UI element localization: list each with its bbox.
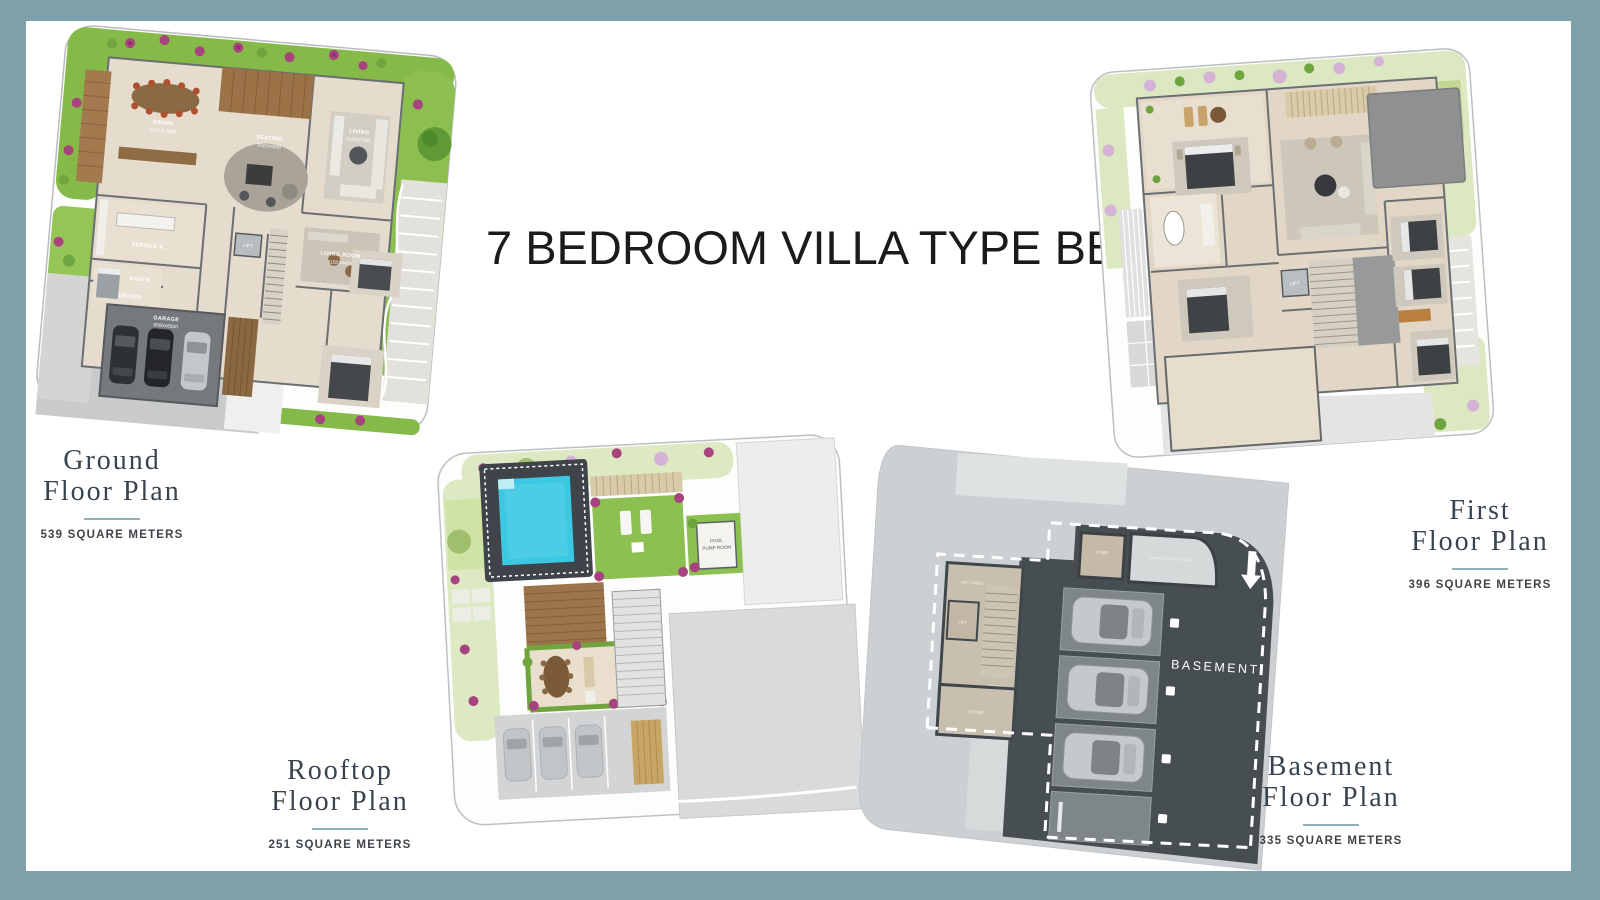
lift: LIFT — [1281, 269, 1309, 297]
first-floor-plan: LIFT — [1078, 35, 1506, 472]
roof-lawn — [590, 493, 688, 582]
room-label-lift: LIFT — [958, 619, 967, 625]
family-living — [1280, 133, 1379, 240]
entry-deck — [219, 67, 314, 119]
pump-room: PUMP — [1079, 533, 1126, 580]
timber-gate — [631, 719, 664, 784]
car-silver — [180, 331, 211, 391]
staff-rooms — [92, 263, 163, 307]
page-title: 7 BEDROOM VILLA TYPE BB — [486, 220, 1117, 275]
room-label-pool: POOL — [710, 538, 723, 544]
first-floor-area: 396 SQUARE METERS — [1380, 579, 1580, 591]
master-bedroom — [1172, 137, 1252, 198]
car-dark-1 — [108, 325, 139, 385]
parked-car — [575, 724, 604, 777]
pool-pump-room: POOL PUMP ROOM — [686, 513, 743, 576]
rooftop-floor-label-title: Rooftop Floor Plan — [240, 756, 440, 818]
rooftop-floor-label-line1: Rooftop — [240, 756, 440, 787]
basement-floor-label-line2: Floor Plan — [1226, 783, 1436, 814]
bathroom — [1150, 193, 1221, 267]
ground-floor-plan-graphic: DINING 4310 X 7800 SEATING 7610X4500 LIV… — [19, 8, 474, 458]
swimming-pool — [479, 459, 593, 582]
lower-roof-terrace — [1165, 347, 1321, 451]
parked-car — [1062, 732, 1145, 783]
parked-car — [503, 728, 532, 781]
first-floor-plan-graphic: LIFT — [1078, 35, 1506, 472]
brochure-canvas: 7 BEDROOM VILLA TYPE BB — [0, 0, 1600, 900]
room-label-pump: PUMP — [1096, 550, 1109, 556]
living-room — [323, 111, 390, 204]
first-floor-label: First Floor Plan 396 SQUARE METERS — [1380, 496, 1580, 591]
label-divider — [312, 828, 368, 830]
ground-floor-label: Ground Floor Plan 539 SQUARE METERS — [12, 446, 212, 541]
car-dark-2 — [143, 328, 174, 388]
first-floor-label-title: First Floor Plan — [1380, 496, 1580, 558]
rooftop-floor-area: 251 SQUARE METERS — [240, 839, 440, 851]
rooftop-floor-plan-graphic: POOL PUMP ROOM — [420, 419, 870, 841]
label-divider — [1452, 568, 1508, 570]
bedroom-2 — [1178, 275, 1254, 342]
pool-deck — [524, 582, 607, 648]
label-divider — [1303, 824, 1359, 826]
parked-car — [539, 726, 568, 779]
room-label-lift: LIFT — [243, 243, 253, 250]
water-tank-room: DOMESTIC WATER TANK — [1128, 534, 1219, 587]
staircase — [1309, 255, 1401, 349]
room-label-store: STORE — [969, 709, 984, 715]
kitchen — [95, 199, 204, 266]
parked-car — [1066, 664, 1149, 715]
parked-car — [1071, 596, 1154, 647]
ground-floor-label-line1: Ground — [12, 446, 212, 477]
label-divider — [84, 518, 140, 520]
staircase — [612, 589, 666, 707]
ground-floor-plan: DINING 4310 X 7800 SEATING 7610X4500 LIV… — [19, 8, 474, 458]
core-rooms: LIFT LOBBY LIFT STAIRS STORE — [937, 563, 1023, 739]
rooftop-floor-plan: POOL PUMP ROOM — [420, 419, 870, 841]
basement-floor-label: Basement Floor Plan 335 SQUARE METERS — [1226, 752, 1436, 847]
room-label-lift: LIFT — [1290, 281, 1300, 288]
basement-floor-label-line1: Basement — [1226, 752, 1436, 783]
rooftop-floor-label-line2: Floor Plan — [240, 787, 440, 818]
ground-floor-label-line2: Floor Plan — [12, 477, 212, 508]
first-floor-label-line2: Floor Plan — [1380, 527, 1580, 558]
basement-floor-area: 335 SQUARE METERS — [1226, 835, 1436, 847]
ground-floor-area: 539 SQUARE METERS — [12, 529, 212, 541]
staircase: STAIRS — [980, 585, 1018, 690]
roof-terrace-void — [1367, 88, 1465, 188]
ground-floor-label-title: Ground Floor Plan — [12, 446, 212, 508]
first-floor-label-line1: First — [1380, 496, 1580, 527]
rooftop-floor-label: Rooftop Floor Plan 251 SQUARE METERS — [240, 756, 440, 851]
basement-floor-label-title: Basement Floor Plan — [1226, 752, 1436, 814]
